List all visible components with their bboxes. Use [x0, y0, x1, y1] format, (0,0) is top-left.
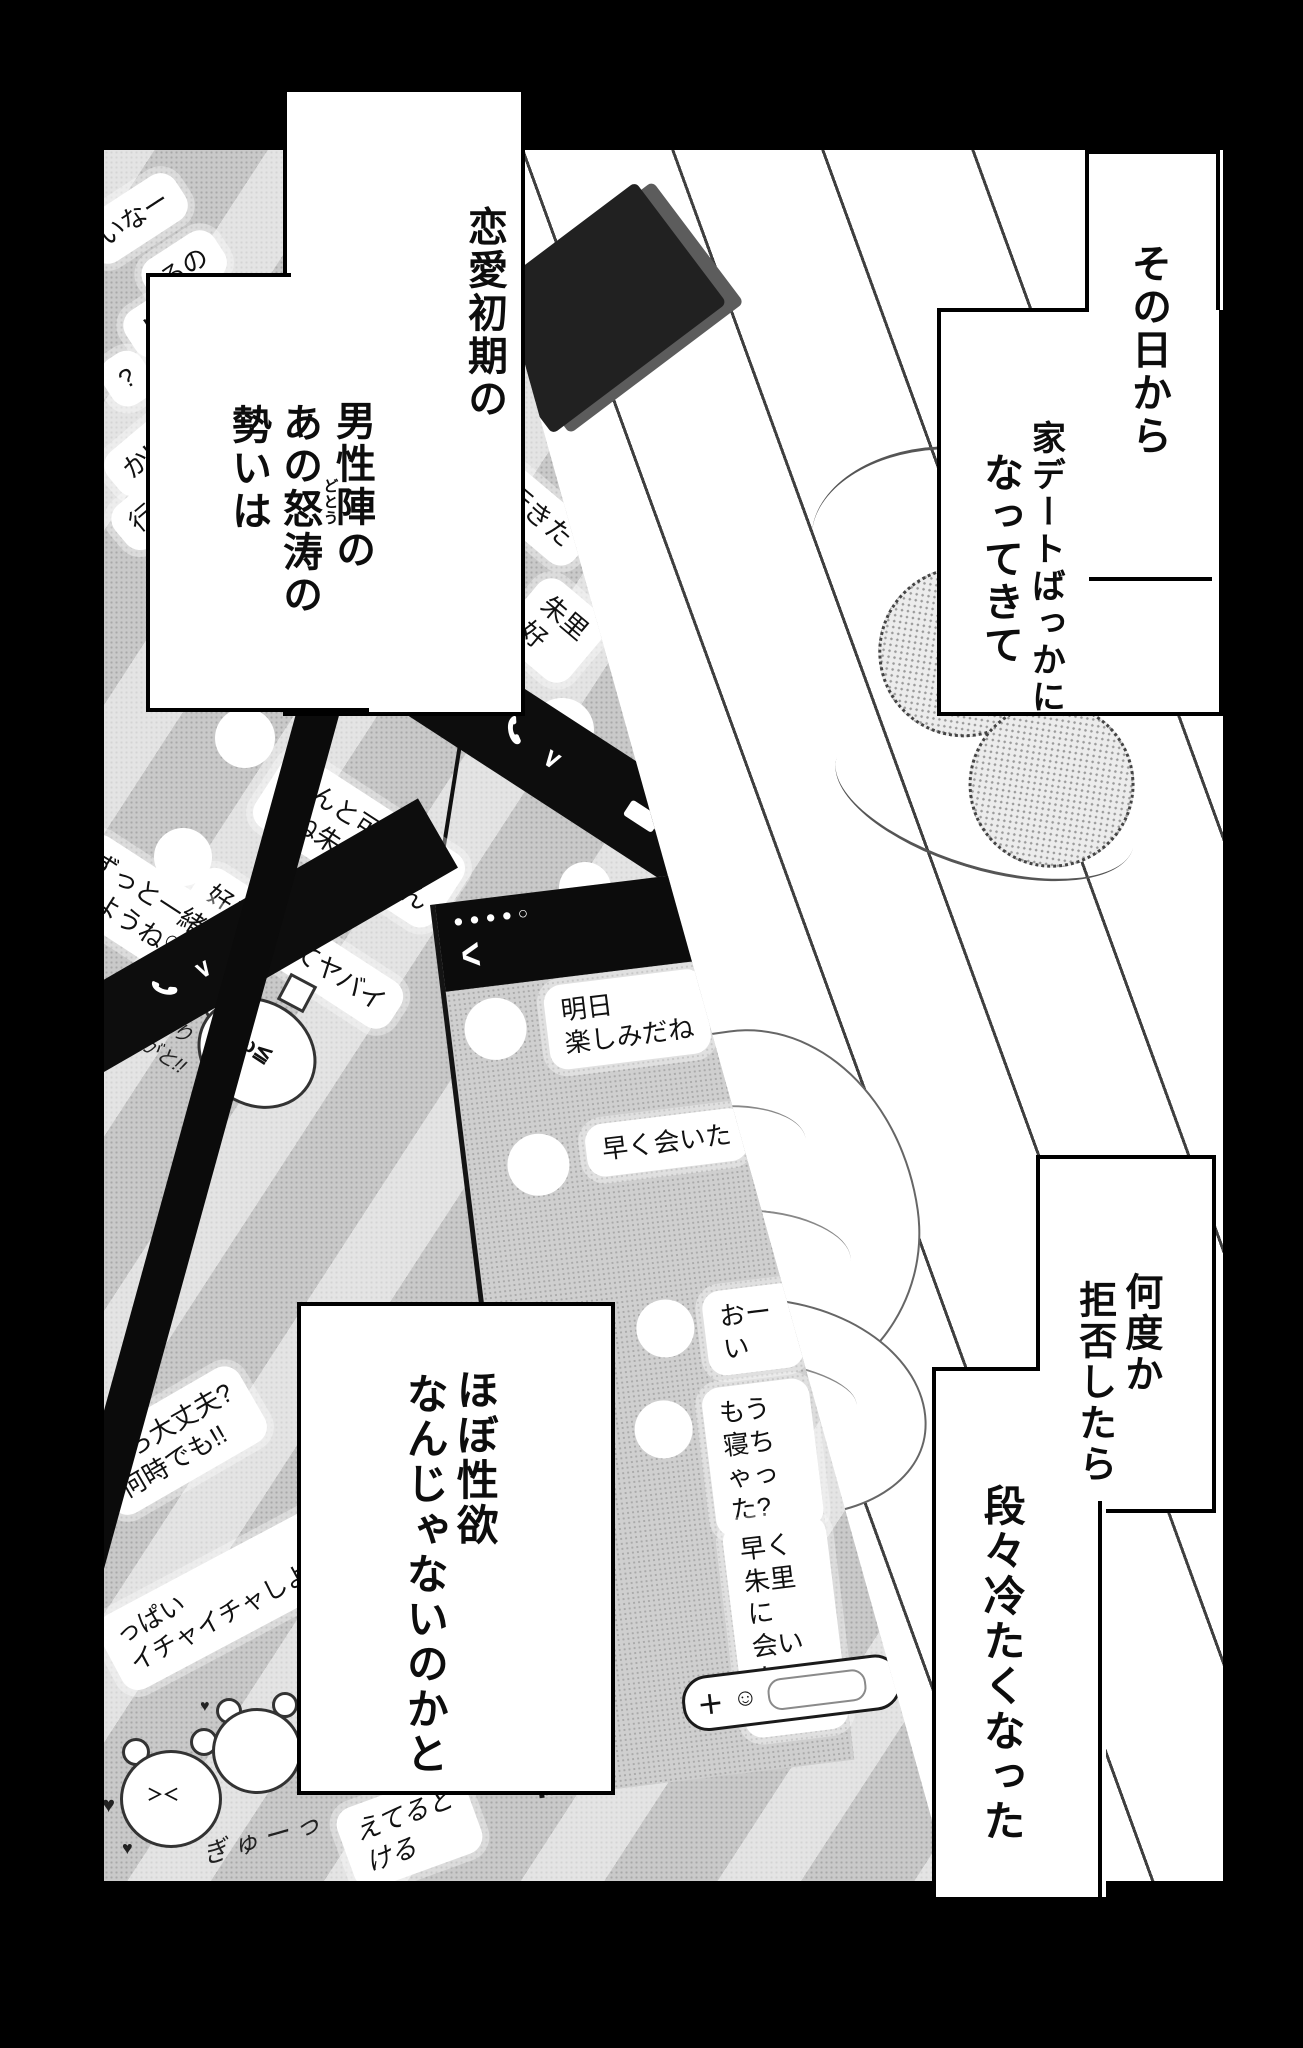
- plus-icon: ＋: [695, 1683, 725, 1723]
- narration-line: なってきて: [978, 452, 1022, 667]
- dots-status-icon: ●●●●○: [452, 902, 535, 932]
- bubble-text: おーい: [718, 1296, 773, 1364]
- box-edge: [932, 1367, 1040, 1371]
- frame-top: [0, 0, 1303, 150]
- chat-bubble: 早く会いた: [583, 1106, 750, 1178]
- narration-line: 何度か: [1118, 1272, 1160, 1395]
- heart-icon: ♥: [122, 1838, 133, 1859]
- box-edge: [937, 308, 1089, 312]
- avatar: [633, 1296, 698, 1361]
- box-edge: [1098, 1501, 1102, 1897]
- chevron-down-icon: ∨: [536, 740, 569, 776]
- frame-bottom: [0, 1881, 1303, 2048]
- bubble-text: もう 寝ちゃった?: [717, 1392, 780, 1525]
- narration-line: その日から: [1126, 243, 1170, 458]
- avatar: [504, 1130, 573, 1199]
- narration-line: 家デートばっかに: [1026, 420, 1063, 716]
- bubble-text: 早く会いた: [600, 1119, 733, 1165]
- chat-bubble: もう 寝ちゃった?: [700, 1377, 825, 1539]
- narration-line: 勢いは: [226, 404, 270, 533]
- narration-line: 段々冷たくなった: [978, 1484, 1024, 1844]
- box-edge: [1089, 577, 1212, 581]
- heart-icon: ♥: [104, 1792, 115, 1818]
- narration-line: 拒否したら: [1072, 1280, 1114, 1485]
- avatar: [215, 708, 275, 768]
- heart-icon: ♥: [200, 1698, 210, 1716]
- bubble-text: ?: [113, 362, 141, 395]
- avatar: [461, 994, 530, 1063]
- text-field: [765, 1668, 867, 1712]
- smiley-icon: ☺: [731, 1683, 759, 1714]
- chevron-down-icon: ∨: [188, 952, 218, 986]
- back-chevron-icon: <: [458, 928, 483, 982]
- frame-right: [1223, 0, 1303, 2048]
- furigana: どとう: [321, 478, 338, 526]
- chat-bubble: 明日 楽しみだね: [542, 967, 713, 1071]
- manga-page: いなー るの し ? かい 行 どこ行きた 朱里 好 ∨ ほんと可愛い よね朱里…: [0, 0, 1303, 2048]
- narration-line: 恋愛初期の: [462, 206, 506, 421]
- narration-line: あの怒涛の: [277, 402, 321, 617]
- bear-face: [212, 1708, 302, 1794]
- bubble-text: 朱里 好: [514, 590, 594, 655]
- box-edge: [146, 273, 291, 277]
- bubble-text: 明日 楽しみだね: [559, 990, 696, 1058]
- avatar: [631, 1397, 696, 1462]
- narration-line: ほぼ性欲: [451, 1368, 497, 1548]
- bear-face-text: ＞＜: [147, 1781, 179, 1805]
- narration-line: なんじゃないのかと: [401, 1372, 447, 1777]
- phone-receiver-icon: [143, 966, 189, 1014]
- frame-left: [0, 0, 104, 2048]
